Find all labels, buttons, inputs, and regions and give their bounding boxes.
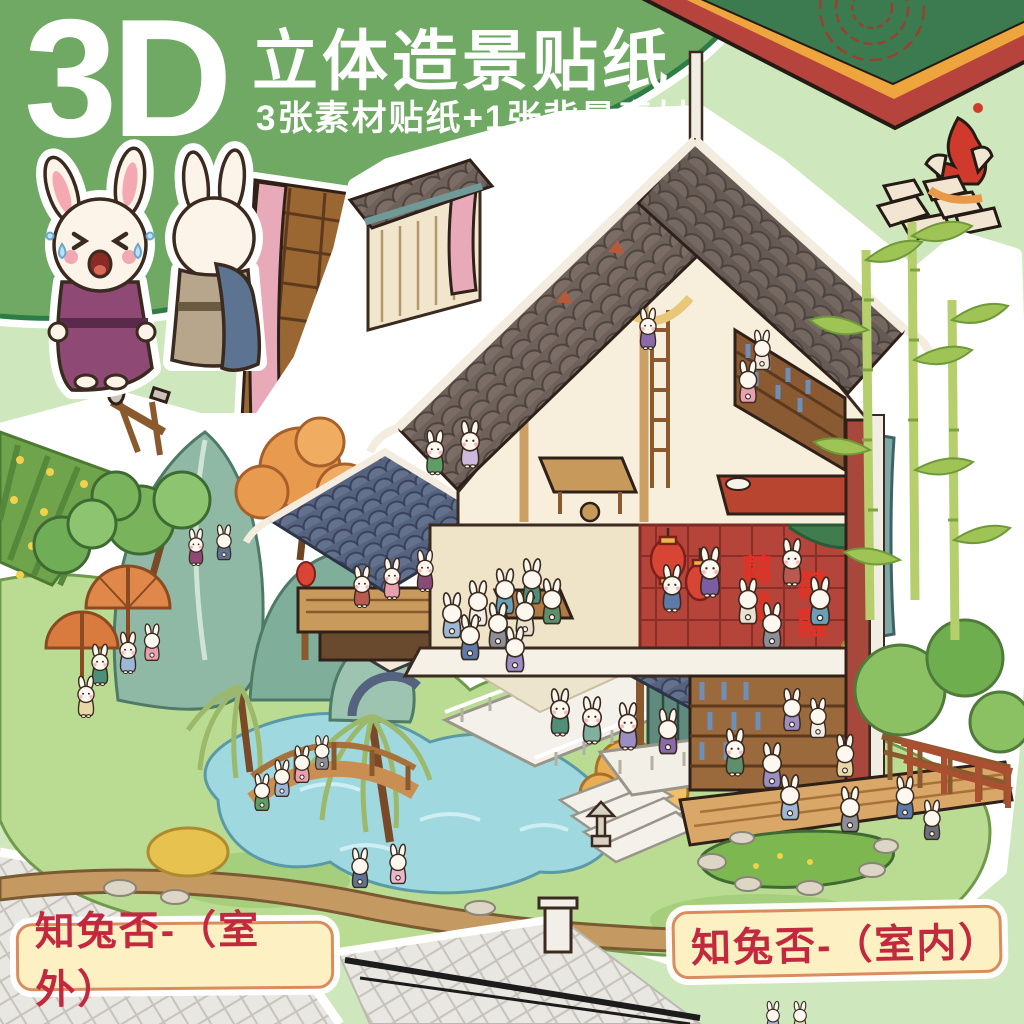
poster: 囍 囍 囍 囍 xyxy=(0,0,1024,1024)
label-indoor: 知兔否-（室内） xyxy=(671,905,1002,980)
ridge-pole xyxy=(690,52,702,147)
rear-curtain xyxy=(449,190,476,294)
attic-bed xyxy=(718,476,858,514)
tongue xyxy=(94,265,106,275)
poster-subtitle: 3张素材贴纸+1张背景素材 xyxy=(256,90,691,141)
label-indoor-text: 知兔否-（室内） xyxy=(690,910,983,974)
label-outdoor: 知兔否-（室外） xyxy=(16,921,335,992)
badge-3d: 3D xyxy=(24,0,227,175)
floor-slab xyxy=(405,648,905,676)
back-rabbit-sticker xyxy=(172,149,259,370)
golden-bush xyxy=(148,828,228,876)
label-outdoor-text: 知兔否-（室外） xyxy=(34,897,315,1015)
